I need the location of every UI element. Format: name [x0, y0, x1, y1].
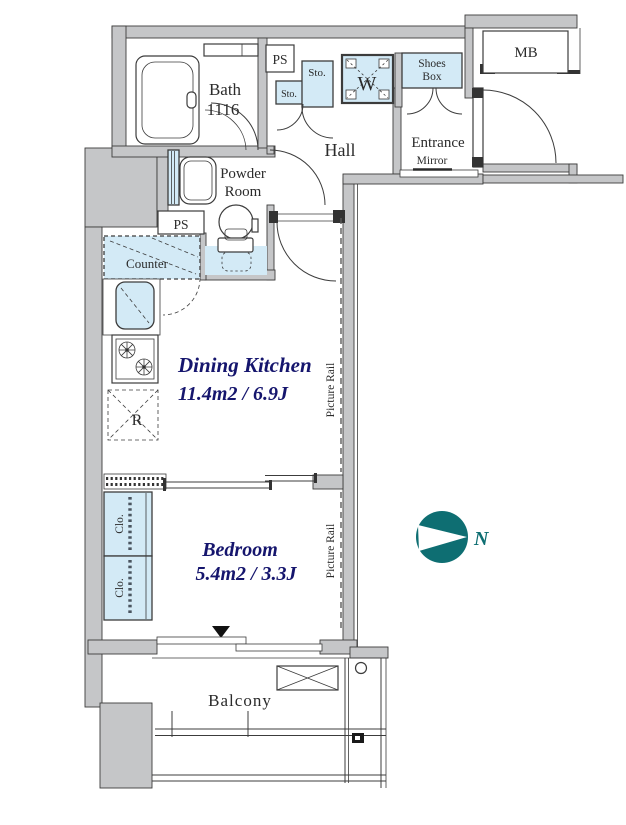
balcony-label: Balcony [208, 691, 272, 710]
dk-jamb-right [333, 210, 345, 223]
shoes-box-label-1: Shoes [418, 58, 446, 70]
counter-label: Counter [126, 256, 169, 271]
slider-tick-left [163, 478, 166, 491]
closet-upper-label: Clo. [114, 514, 126, 534]
shoes-box-label-2: Box [422, 71, 441, 83]
dk-jamb-left [269, 211, 278, 223]
wall-corridor-b [483, 175, 623, 183]
mirror-label: Mirror [417, 155, 448, 167]
burner-1 [119, 342, 135, 358]
meter-box-label: MB [514, 45, 537, 61]
drain-circle [356, 663, 367, 674]
wall-left-upper [112, 26, 126, 150]
wall-block-lower-left [100, 703, 152, 788]
floor-plan-page: Bath 1116 PS Sto. Sto. W Shoes Box MB En… [0, 0, 626, 825]
slider-tick-mid [269, 480, 272, 490]
railing-mark-inner [355, 736, 360, 740]
toilet-bowl [219, 205, 253, 239]
wall-washer-shoes-divider [395, 53, 402, 107]
toilet-handle [252, 219, 258, 232]
dining-kitchen-size: 11.4m2 / 6.9J [178, 383, 289, 405]
wall-corridor-a [483, 164, 577, 172]
burner-2 [136, 359, 152, 375]
wall-balcony-right-piece [350, 647, 388, 658]
closet-upper [104, 492, 152, 556]
powder-side-panel [168, 150, 179, 205]
wall-top-main [112, 26, 472, 38]
entrance-jamb-bottom [472, 157, 483, 167]
bedroom-size: 5.4m2 / 3.3J [195, 563, 297, 585]
window-pane-left [157, 637, 246, 644]
entrance-label: Entrance [411, 135, 465, 151]
wall-bath-bottom [112, 146, 275, 157]
wall-dk-bedroom-right [313, 475, 343, 489]
sto-large-label: Sto. [308, 67, 326, 79]
partition-hatch-box [104, 474, 166, 489]
hall-label: Hall [325, 140, 356, 160]
wall-right-main [343, 178, 354, 647]
closet-lower [104, 556, 152, 620]
bathtub-faucet [187, 92, 196, 108]
floor-plan-drawing: Bath 1116 PS Sto. Sto. W Shoes Box MB En… [0, 0, 626, 825]
wall-bedroom-bottom-left [88, 640, 157, 654]
dining-kitchen-label: Dining Kitchen [177, 353, 312, 377]
bath-size-label: 1116 [207, 100, 240, 119]
window-pane-right [236, 644, 322, 651]
entrance-door-jamb [473, 88, 483, 167]
ps-mid-label: PS [173, 217, 188, 232]
entrance-step [400, 170, 478, 177]
picture-rail-label-bedroom: Picture Rail [325, 524, 337, 579]
closet-lower-label: Clo. [114, 578, 126, 598]
bedroom-label: Bedroom [201, 539, 278, 561]
washer-label: W [358, 73, 377, 95]
picture-rail-label-dk: Picture Rail [325, 363, 337, 418]
wall-top-right [465, 15, 577, 28]
wall-mb-divider [465, 28, 473, 98]
wall-left-main [85, 227, 102, 707]
bath-shelf [204, 44, 258, 56]
slider-tick-right [314, 473, 317, 483]
ps-top-label: PS [272, 52, 287, 67]
sto-small-label: Sto. [281, 89, 297, 100]
wall-block-upper-left [85, 148, 157, 227]
powder-room-label-2: Room [225, 184, 262, 200]
bath-label: Bath [209, 80, 242, 99]
powder-room-label-1: Powder [220, 166, 266, 182]
north-label: N [473, 528, 490, 550]
stove [112, 335, 158, 383]
refrigerator-label: R [132, 412, 143, 429]
entrance-jamb-top [472, 88, 483, 98]
